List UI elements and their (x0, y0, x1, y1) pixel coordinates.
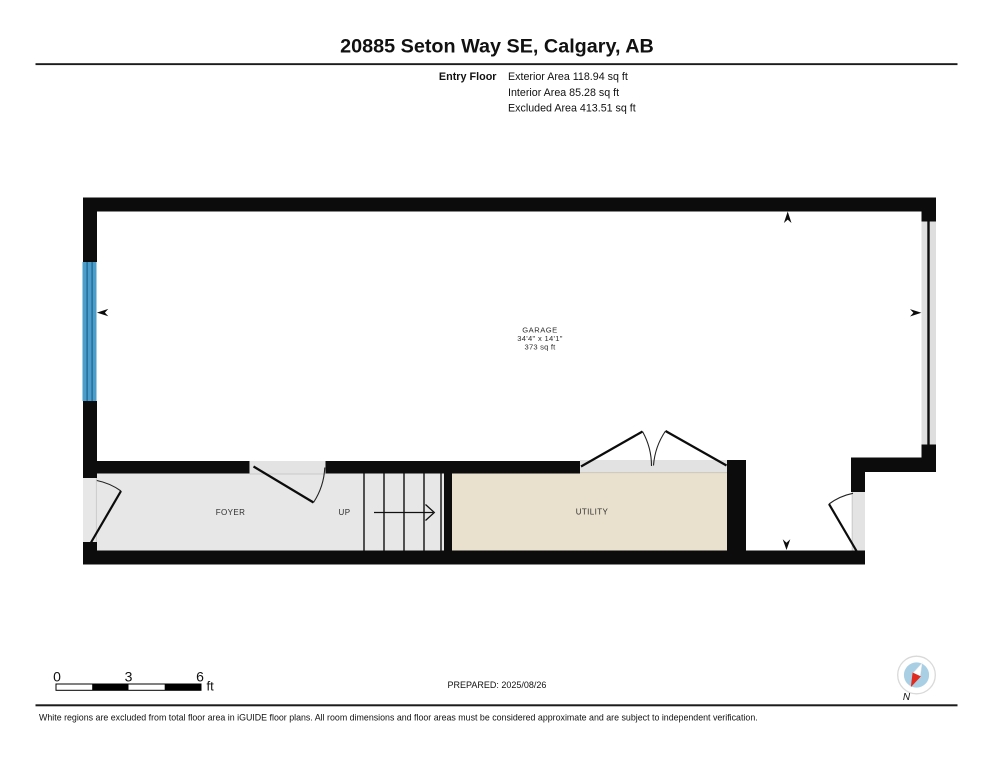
svg-text:UP: UP (339, 508, 351, 517)
svg-text:3: 3 (125, 669, 133, 685)
svg-text:N: N (903, 692, 911, 703)
svg-text:PREPARED: 2025/08/26: PREPARED: 2025/08/26 (448, 680, 547, 690)
svg-text:0: 0 (53, 669, 61, 685)
svg-text:FOYER: FOYER (216, 508, 246, 517)
svg-text:Exterior Area 118.94 sq ft: Exterior Area 118.94 sq ft (508, 71, 628, 83)
svg-text:Excluded Area 413.51 sq ft: Excluded Area 413.51 sq ft (508, 103, 636, 115)
svg-text:6: 6 (196, 669, 204, 685)
svg-text:20885 Seton Way SE, Calgary, A: 20885 Seton Way SE, Calgary, AB (340, 36, 654, 58)
svg-text:Interior Area 85.28 sq ft: Interior Area 85.28 sq ft (508, 87, 619, 99)
svg-text:UTILITY: UTILITY (576, 508, 609, 517)
svg-text:Entry Floor: Entry Floor (439, 71, 497, 83)
svg-text:White regions are excluded fro: White regions are excluded from total fl… (39, 713, 758, 723)
svg-text:373 sq ft: 373 sq ft (525, 342, 557, 351)
svg-text:ft: ft (207, 679, 215, 694)
